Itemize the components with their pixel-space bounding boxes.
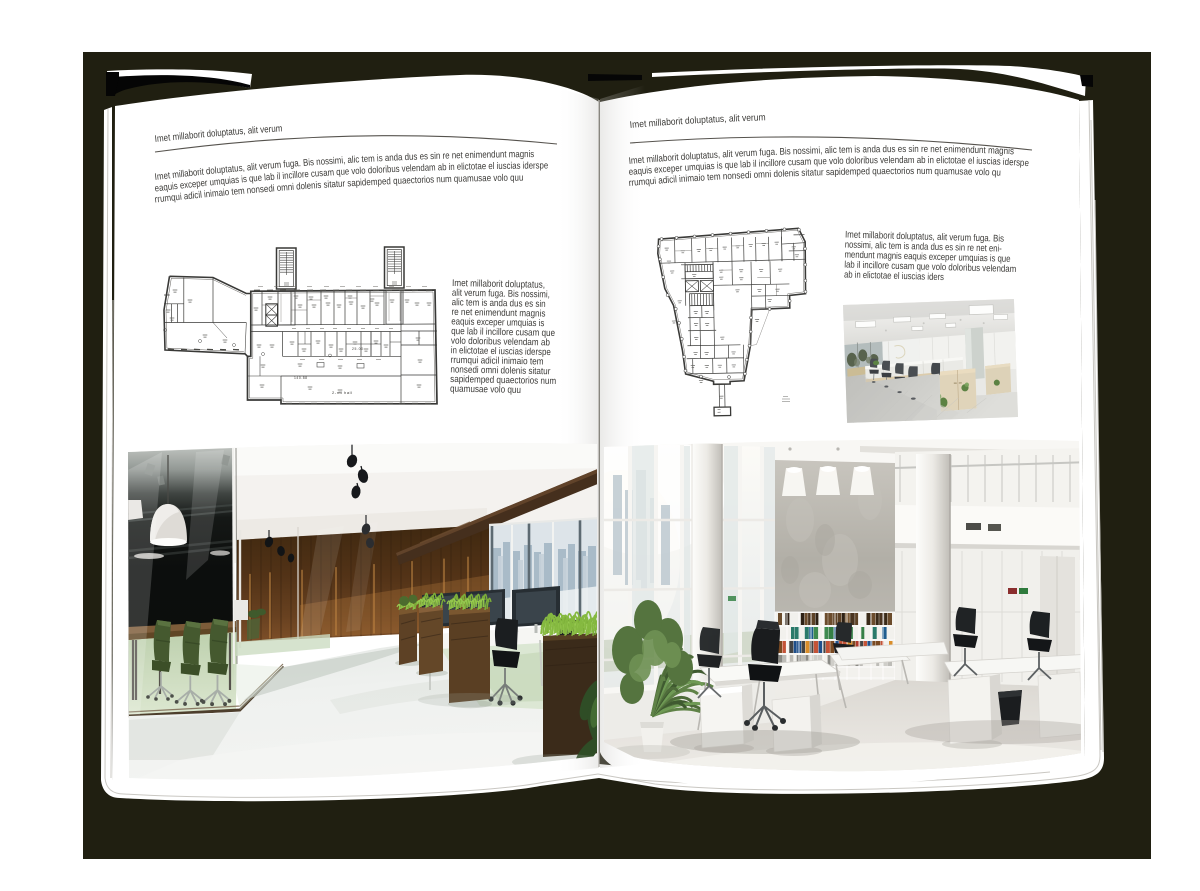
svg-text:quamusae volo quu: quamusae volo quu — [450, 384, 521, 396]
svg-text:2-nd hall: 2-nd hall — [332, 390, 352, 395]
svg-text:140.88: 140.88 — [294, 376, 307, 380]
svg-text:25.00: 25.00 — [352, 347, 363, 351]
